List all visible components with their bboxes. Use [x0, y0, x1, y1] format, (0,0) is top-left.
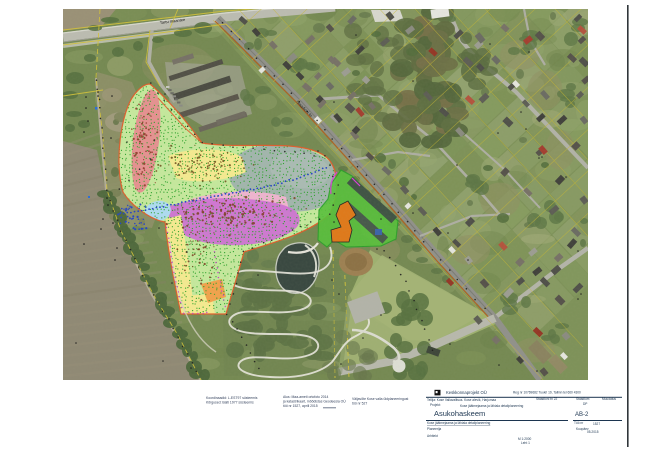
svg-text:Planeerija: Planeerija: [427, 427, 441, 431]
svg-text:Staadioni tn 22: Staadioni tn 22: [536, 397, 557, 401]
svg-text:töö nr 1527, aprill 2015: töö nr 1527, aprill 2015: [283, 404, 318, 408]
svg-text:Leht 1: Leht 1: [521, 441, 530, 445]
svg-text:DP: DP: [583, 402, 587, 406]
svg-text:ja katastrikaart, mõõdistas Ge: ja katastrikaart, mõõdistas Geodeesia OÜ: [282, 400, 346, 404]
svg-text:Keskkonnaprojekt OÜ: Keskkonnaprojekt OÜ: [446, 390, 487, 395]
svg-text:Projekt:: Projekt:: [430, 403, 441, 407]
svg-text:Staadium: Staadium: [576, 397, 590, 401]
svg-text:Koordinaadid: L-EST97 süsteemi: Koordinaadid: L-EST97 süsteemis: [206, 396, 258, 400]
svg-text:Tellija: Kose Vallavalitsus. K: Tellija: Kose Vallavalitsus. Kose alevik…: [427, 398, 496, 402]
svg-text:Alus: Maa-ameti ortofoto 2014: Alus: Maa-ameti ortofoto 2014: [283, 395, 329, 399]
svg-text:Väljavõte Kose valla üldplanee: Väljavõte Kose valla üldplaneeringust: [352, 397, 408, 401]
svg-text:Kose jäätmejaama ja lähiala de: Kose jäätmejaama ja lähiala detailplanee…: [460, 404, 523, 408]
svg-text:AB-2: AB-2: [575, 412, 589, 418]
svg-text:1527: 1527: [593, 422, 600, 426]
svg-text:Asukohaskeem: Asukohaskeem: [434, 409, 485, 418]
svg-text:Muudatus: Muudatus: [602, 397, 616, 401]
svg-text:Arhitekt: Arhitekt: [427, 434, 438, 438]
svg-text:Töö nr: Töö nr: [574, 421, 584, 425]
svg-text:Kõrgused: Balti 1977 süsteemis: Kõrgused: Balti 1977 süsteemis: [206, 401, 254, 405]
svg-text:töö nr 527: töö nr 527: [352, 402, 367, 406]
svg-text:05.2015: 05.2015: [587, 430, 599, 434]
svg-text:Reg nr 10769682 Tuukri 19, T: Reg nr 10769682 Tuukri 19, Tallinn tel 6…: [513, 391, 581, 395]
svg-text:Kose jäätmejaama ja lähiala de: Kose jäätmejaama ja lähiala detailplanee…: [427, 421, 490, 425]
